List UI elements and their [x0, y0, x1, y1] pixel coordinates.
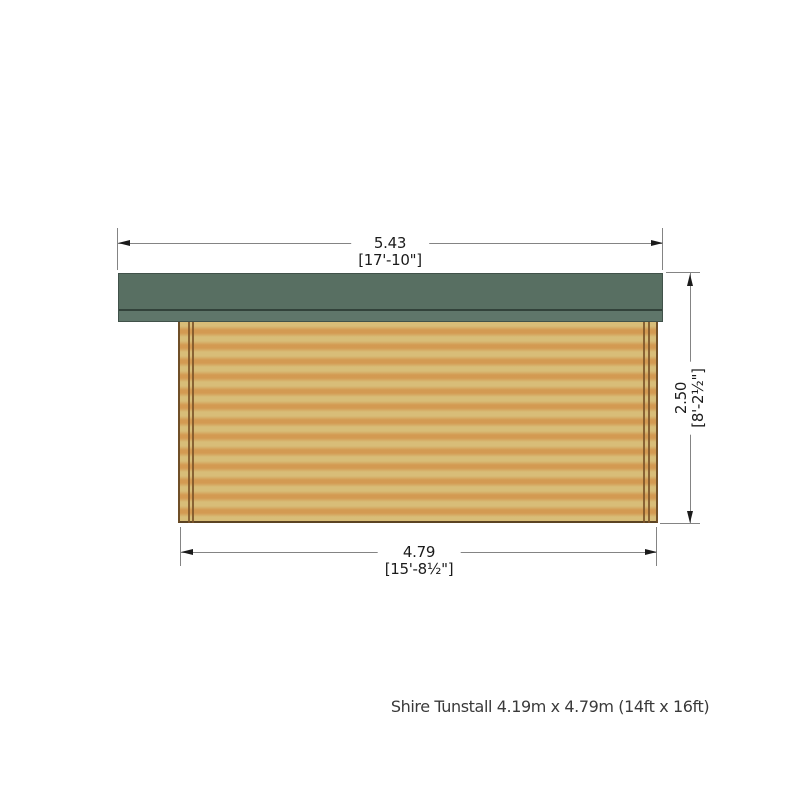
bottom-dim-imperial: [15'-8½"] [385, 561, 454, 578]
top-dim-right-extension [662, 228, 663, 270]
right-dim-imperial: [8'-2½"] [690, 368, 707, 427]
top-dim-label: 5.43 [17'-10"] [351, 234, 429, 270]
right-corner-post-line [648, 322, 650, 523]
bottom-dim-arrow-right [645, 549, 657, 555]
right-dim-metric: 2.50 [673, 368, 690, 427]
right-dim-label: 2.50 [8'-2½"] [672, 361, 708, 434]
top-dim-metric: 5.43 [358, 235, 422, 252]
bottom-dim-metric: 4.79 [385, 544, 454, 561]
top-dim-arrow-left [118, 240, 130, 246]
roof [118, 273, 663, 322]
right-dim-arrow-up [687, 274, 693, 286]
elevation-diagram: 5.43 [17'-10"] 2.50 [8'-2½"] 4.79 [15'-8… [0, 0, 800, 800]
bottom-dim-arrow-left [181, 549, 193, 555]
product-caption: Shire Tunstall 4.19m x 4.79m (14ft x 16f… [391, 697, 709, 716]
bottom-dim-left-extension [180, 527, 181, 566]
bottom-dim-right-extension [656, 527, 657, 566]
log-wall [178, 322, 658, 523]
bottom-dim-label: 4.79 [15'-8½"] [378, 543, 461, 579]
top-dim-left-extension [117, 228, 118, 270]
right-corner-post-line [643, 322, 645, 523]
right-dim-top-extension [666, 272, 700, 273]
roof-fascia [119, 311, 662, 321]
top-dim-imperial: [17'-10"] [358, 252, 422, 269]
right-dim-arrow-down [687, 511, 693, 523]
left-corner-post-line [192, 322, 194, 523]
top-dim-arrow-right [651, 240, 663, 246]
left-corner-post-line [188, 322, 190, 523]
right-dim-bottom-extension [660, 523, 700, 524]
